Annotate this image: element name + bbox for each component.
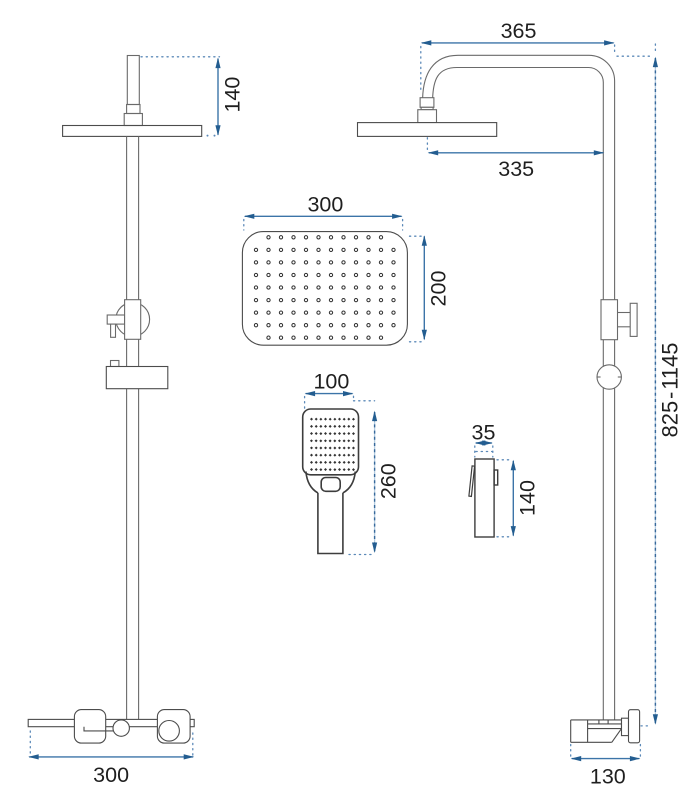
svg-text:140: 140	[221, 77, 245, 113]
svg-text:300: 300	[307, 193, 343, 217]
svg-text:825 - 1145: 825 - 1145	[658, 342, 683, 437]
svg-text:130: 130	[590, 765, 626, 789]
svg-text:300: 300	[93, 763, 129, 787]
svg-text:140: 140	[515, 480, 539, 516]
svg-text:200: 200	[427, 271, 451, 307]
svg-text:260: 260	[376, 463, 400, 499]
svg-text:335: 335	[498, 157, 534, 181]
svg-text:100: 100	[313, 370, 349, 394]
svg-text:365: 365	[501, 19, 537, 43]
